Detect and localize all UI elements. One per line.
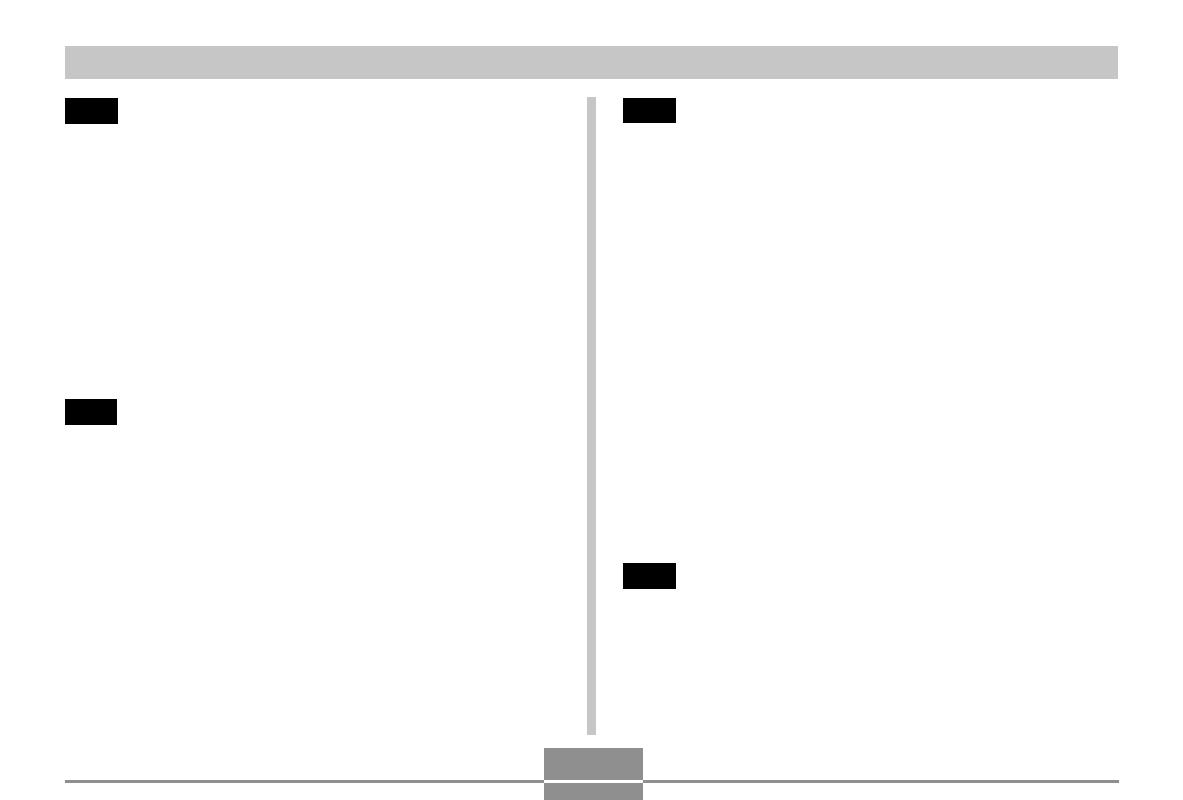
document-page <box>0 0 1183 800</box>
section-tab-right-top <box>623 98 676 123</box>
page-number-box-group <box>544 748 643 800</box>
section-tab-right-lower <box>623 563 676 589</box>
header-band <box>65 46 1118 79</box>
column-divider <box>587 97 596 735</box>
page-number-box <box>544 748 643 780</box>
page-number-box-lower <box>544 783 643 800</box>
section-tab-left-middle <box>65 399 117 425</box>
section-tab-left-top <box>65 98 118 124</box>
